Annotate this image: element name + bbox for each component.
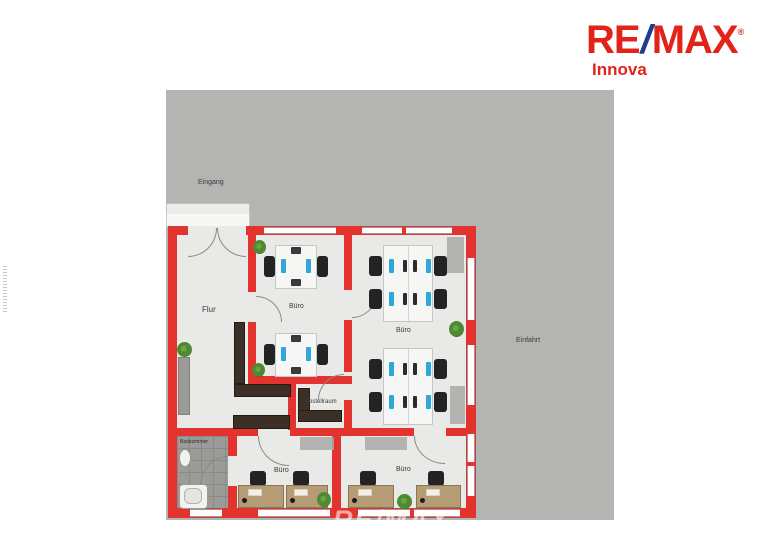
chair	[317, 344, 328, 365]
label-entrance: Eingang	[198, 179, 224, 186]
monitor	[306, 259, 311, 273]
label-storage: Abstellraum	[305, 399, 337, 405]
monitor	[426, 292, 431, 306]
bathroom-tub-inner	[184, 488, 202, 504]
window-bottom-bathroom	[190, 509, 222, 517]
planter-hallway	[178, 357, 190, 415]
fine-print-vertical	[3, 266, 7, 312]
desk-cluster-large-office-2	[383, 348, 433, 425]
window-top-large-office-a	[362, 227, 402, 234]
hallway-counter-vertical	[234, 322, 245, 384]
wall-bathroom-east-upper	[228, 436, 237, 456]
desk-paper	[358, 489, 372, 496]
desk-item	[291, 335, 301, 342]
chair	[369, 359, 382, 379]
window-bottom-office-right-a	[358, 509, 410, 517]
desk-item	[290, 498, 295, 503]
chair	[317, 256, 328, 277]
hallway-counter-horizontal	[234, 384, 291, 397]
window-bottom-office-right-b	[414, 509, 460, 517]
label-bathroom: Badezimmer	[180, 440, 208, 445]
window-right-d	[467, 466, 475, 496]
desk-item	[403, 293, 407, 305]
chair	[250, 471, 266, 486]
desk-item	[413, 396, 417, 408]
monitor	[426, 362, 431, 376]
desk-item	[291, 367, 301, 374]
chair	[360, 471, 376, 486]
window-top-large-office-b	[406, 227, 452, 234]
logo-slash: /	[640, 18, 652, 62]
monitor	[281, 347, 286, 361]
window-right-c	[467, 434, 475, 462]
wall-office-divider-upper	[344, 234, 352, 290]
logo-max: MAX	[652, 18, 738, 62]
monitor	[389, 259, 394, 273]
remax-logo: RE/MAX® Innova	[586, 20, 764, 78]
window-top-middle-office	[264, 227, 336, 234]
monitor	[281, 259, 286, 273]
chair	[293, 471, 309, 486]
label-office-middle: Büro	[289, 303, 304, 310]
chair	[369, 289, 382, 309]
monitor	[426, 395, 431, 409]
plant-middle-office-bottom	[252, 363, 265, 377]
storage-shelf-south	[298, 410, 342, 422]
desk-item	[291, 247, 301, 254]
desk-item	[291, 279, 301, 286]
wall-outer-left	[168, 226, 177, 518]
desk-cluster-large-office-1	[383, 245, 433, 322]
chair	[434, 256, 447, 276]
remax-logo-subbrand: Innova	[592, 61, 764, 78]
desk-paper	[426, 489, 440, 496]
chair	[369, 256, 382, 276]
monitor	[306, 347, 311, 361]
registered-trademark-icon: ®	[738, 27, 745, 37]
desk-item	[242, 498, 247, 503]
wall-outer-top-stub	[168, 226, 188, 235]
desk-item	[420, 498, 425, 503]
wall-corridor-south-a	[168, 428, 258, 436]
plant-bottom-left-office	[317, 492, 331, 507]
mat-large-office-right	[450, 386, 465, 424]
chair	[264, 256, 275, 277]
label-office-bottom-left: Büro	[274, 467, 289, 474]
window-bottom-office-left	[258, 509, 330, 517]
mat-bottom-left-office	[300, 437, 334, 450]
wall-office-divider-mid	[344, 320, 352, 372]
wall-corridor-south-b	[290, 428, 414, 436]
desk-item	[403, 396, 407, 408]
label-office-bottom-right: Büro	[396, 466, 411, 473]
monitor	[426, 259, 431, 273]
desk-item	[413, 260, 417, 272]
monitor	[389, 362, 394, 376]
desk-paper	[248, 489, 262, 496]
window-right-a	[467, 258, 475, 320]
monitor	[389, 292, 394, 306]
chair	[369, 392, 382, 412]
chair	[428, 471, 444, 486]
remax-logo-wordmark: RE/MAX®	[586, 20, 764, 60]
hallway-sideboard	[233, 415, 290, 429]
plant-bottom-right-office	[397, 494, 412, 509]
plant-middle-office-top	[253, 240, 266, 254]
chair	[434, 359, 447, 379]
chair	[434, 289, 447, 309]
desk-item	[413, 363, 417, 375]
floorplan-page: Eingang Einfahrt	[0, 0, 770, 544]
mat-large-office-top	[447, 237, 464, 273]
desk-item	[352, 498, 357, 503]
label-office-large: Büro	[396, 327, 411, 334]
desk-paper	[294, 489, 308, 496]
label-driveway: Einfahrt	[516, 337, 540, 344]
chair	[264, 344, 275, 365]
window-right-b	[467, 345, 475, 405]
monitor	[389, 395, 394, 409]
label-hallway: Flur	[202, 306, 216, 314]
wall-office-divider-lower	[344, 400, 352, 430]
bathroom-sink	[179, 449, 191, 467]
desk-item	[403, 260, 407, 272]
chair	[434, 392, 447, 412]
desk-item	[413, 293, 417, 305]
wall-bathroom-east-lower	[228, 486, 237, 508]
plant-large-office	[449, 321, 464, 337]
plant-hallway	[177, 342, 192, 357]
logo-re: RE	[586, 18, 640, 62]
mat-bottom-right-office	[365, 437, 407, 450]
desk-item	[403, 363, 407, 375]
